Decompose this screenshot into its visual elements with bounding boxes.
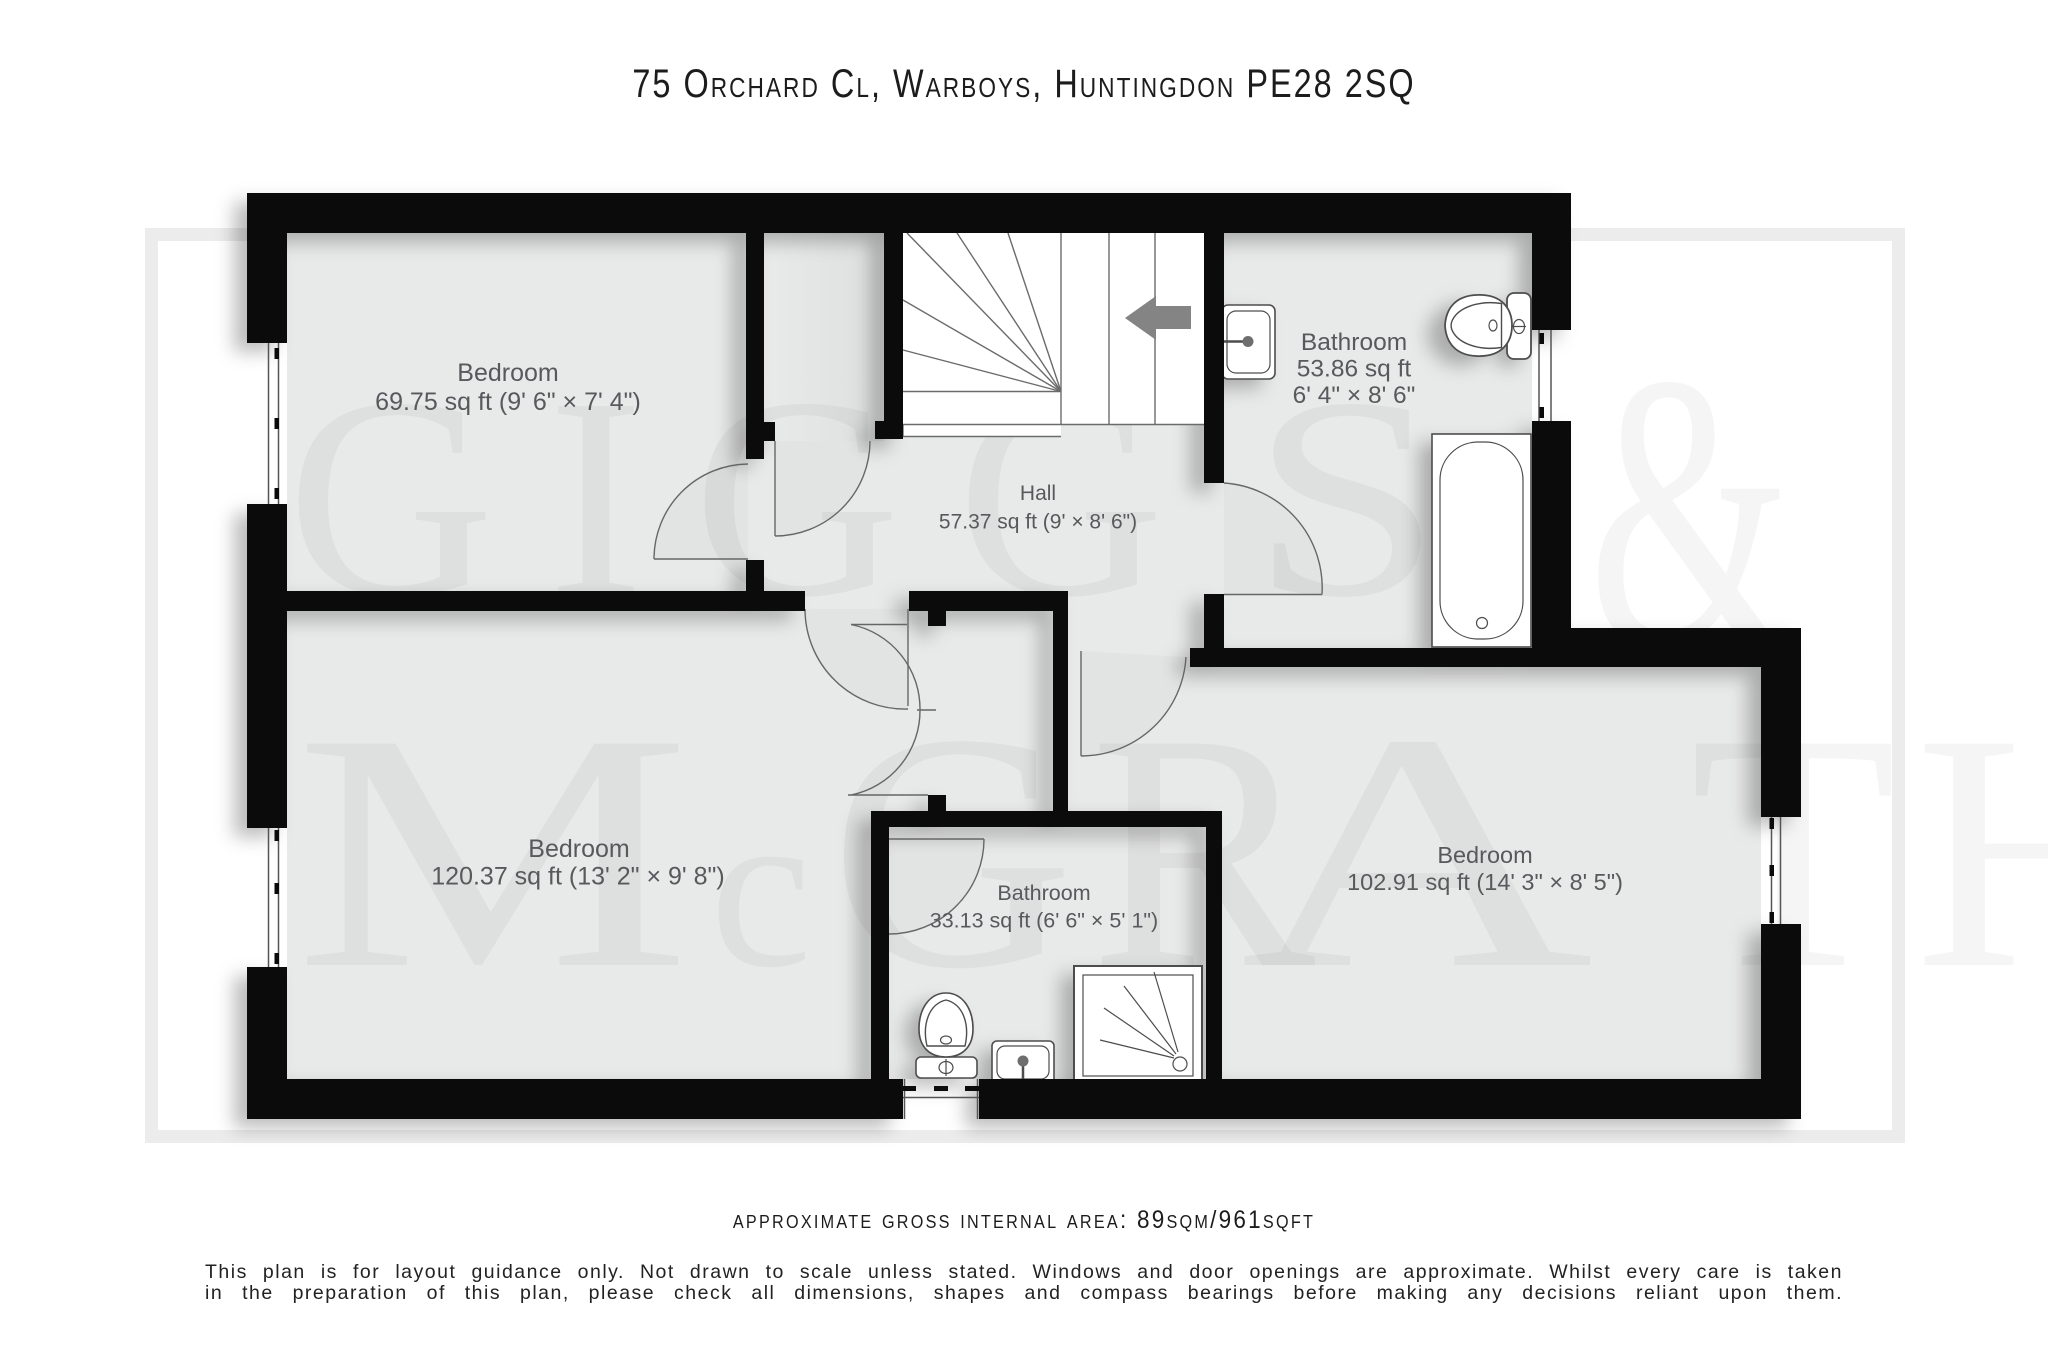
svg-text:Hall: Hall — [1020, 482, 1056, 505]
svg-text:120.37 sq ft (13' 2" × 9' 8"): 120.37 sq ft (13' 2" × 9' 8") — [431, 863, 724, 891]
svg-text:A: A — [1240, 665, 1594, 1039]
svg-text:Bedroom: Bedroom — [528, 835, 629, 863]
svg-text:57.37 sq ft (9' × 8' 6"): 57.37 sq ft (9' × 8' 6") — [939, 511, 1137, 534]
svg-text:Bedroom: Bedroom — [1437, 842, 1532, 868]
svg-text:Bedroom: Bedroom — [457, 359, 558, 387]
svg-text:c: c — [710, 760, 812, 1015]
svg-text:102.91 sq ft (14' 3" × 8' 5"): 102.91 sq ft (14' 3" × 8' 5") — [1347, 869, 1623, 895]
svg-text:Bathroom: Bathroom — [997, 881, 1090, 905]
svg-text:69.75 sq ft (9' 6" × 7' 4"): 69.75 sq ft (9' 6" × 7' 4") — [375, 388, 641, 416]
svg-text:M: M — [294, 664, 691, 1039]
svg-text:53.86 sq ft: 53.86 sq ft — [1297, 356, 1412, 383]
svg-text:6' 4" × 8' 6": 6' 4" × 8' 6" — [1293, 382, 1416, 409]
svg-text:33.13 sq ft (6' 6" × 5' 1"): 33.13 sq ft (6' 6" × 5' 1") — [930, 909, 1158, 933]
svg-text:Bathroom: Bathroom — [1301, 329, 1407, 356]
svg-text:H: H — [1915, 665, 2048, 1039]
